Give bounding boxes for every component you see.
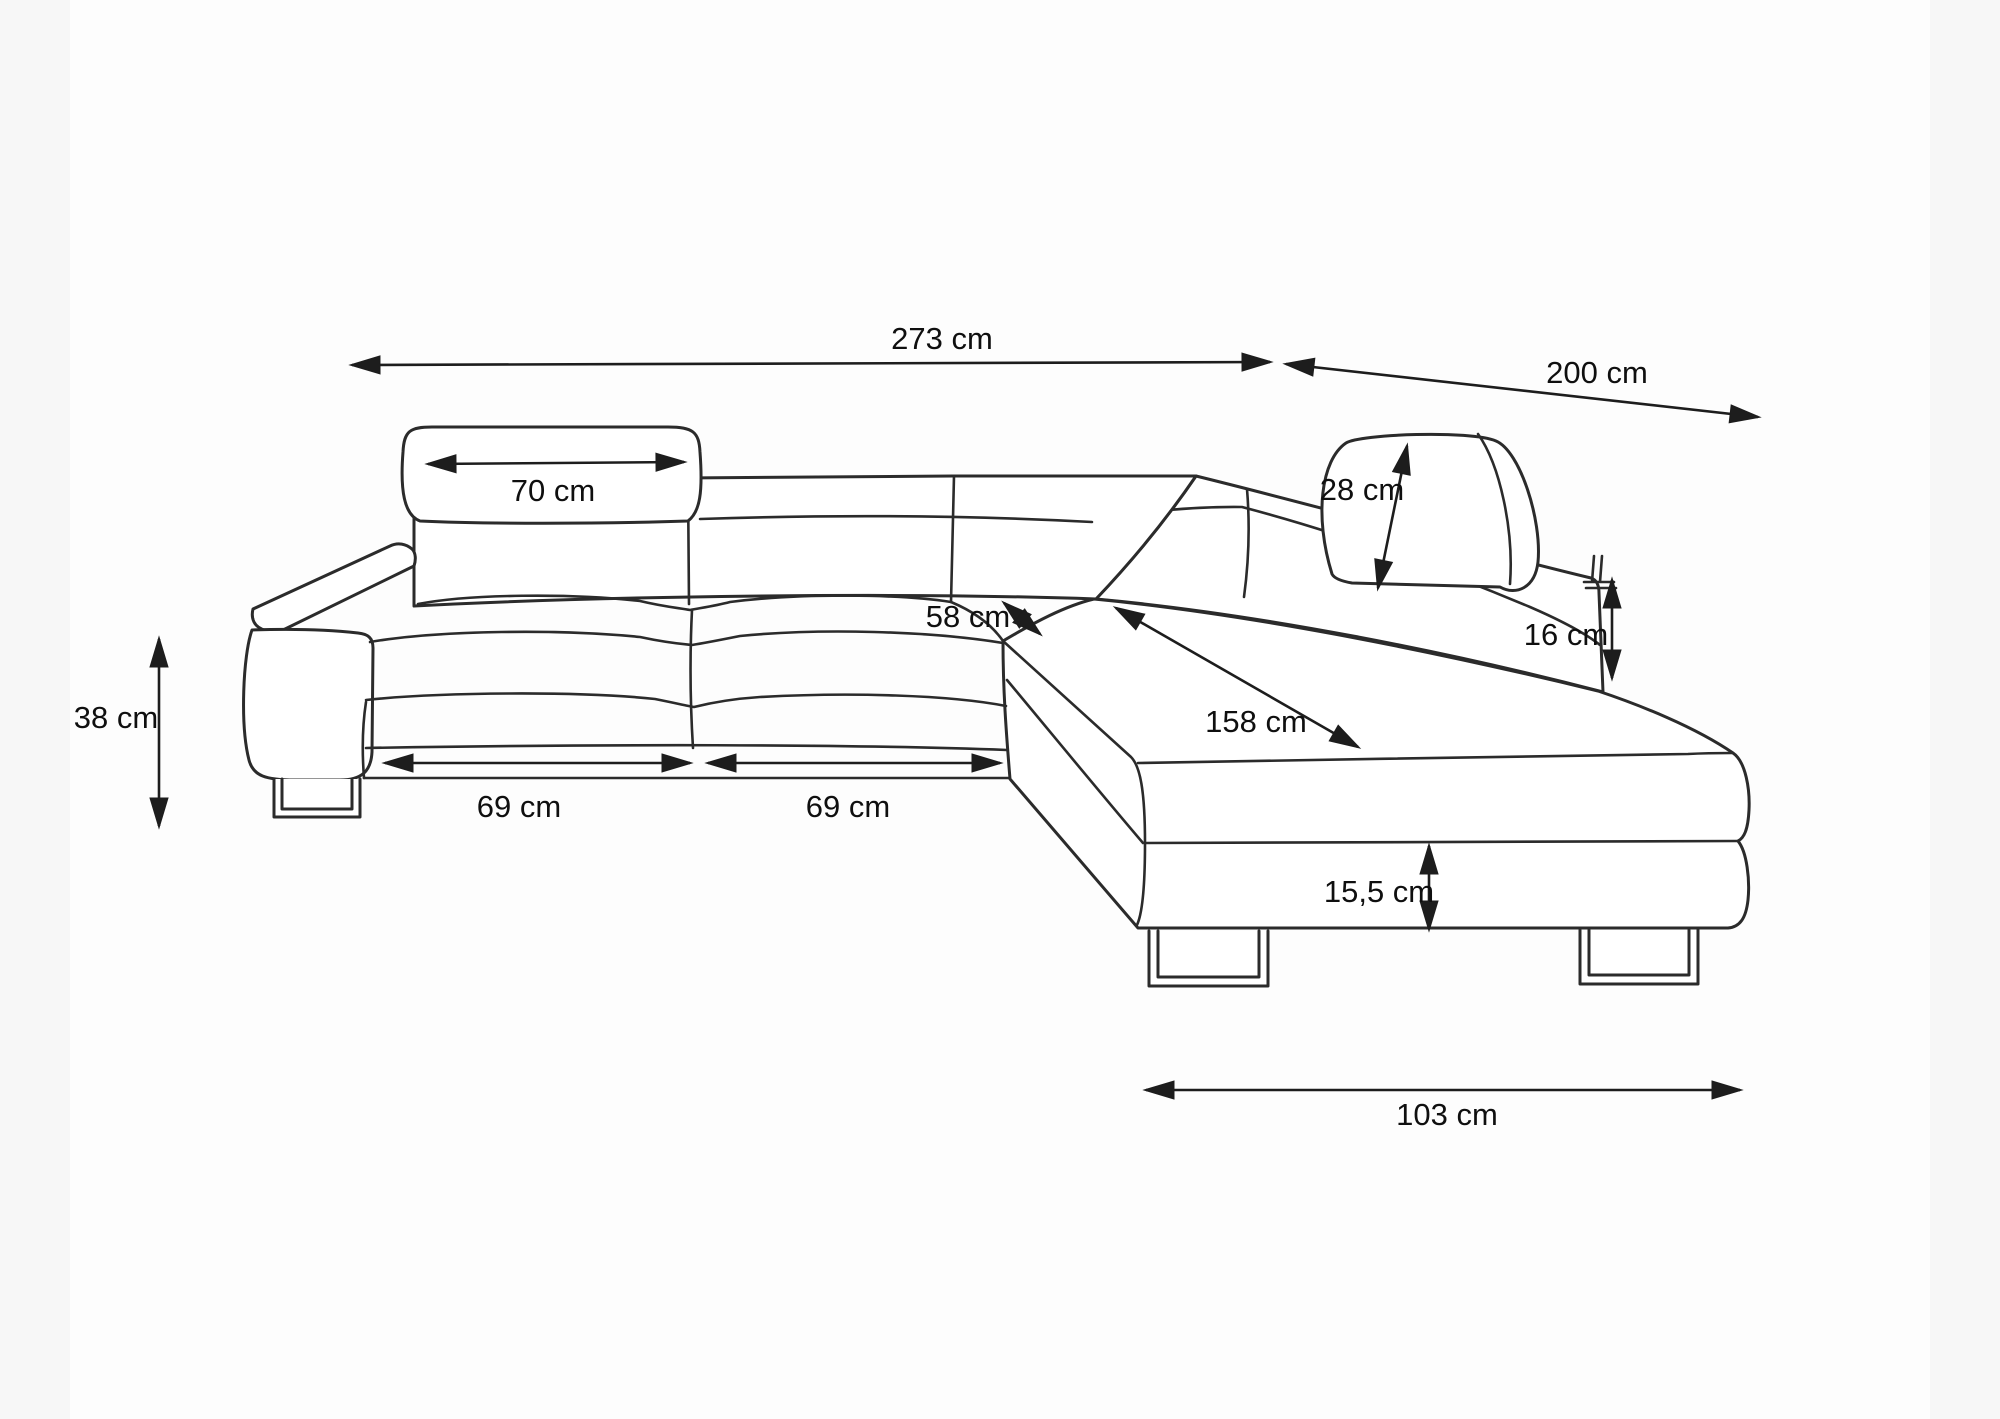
total-depth-label: 200 cm <box>1546 355 1648 390</box>
seat-base-top-line <box>366 745 1007 750</box>
sofa-dimension-diagram: 273 cm 200 cm 70 cm 28 cm 16 cm 38 cm 58… <box>0 0 2000 1419</box>
headrest-height-label: 28 cm <box>1320 472 1404 507</box>
seat-tuft-line-front <box>370 632 1003 645</box>
armrest-top <box>252 544 415 632</box>
armrest-height-label: 38 cm <box>74 700 158 735</box>
corner-seat-depth-label: 58 cm <box>926 599 1010 634</box>
sleeping-length-label: 158 cm <box>1205 704 1307 739</box>
total-depth-arrow <box>1286 364 1758 417</box>
seat-width-left-label: 69 cm <box>477 789 561 824</box>
total-width-label: 273 cm <box>891 321 993 356</box>
seat-cushion-seam <box>691 610 693 748</box>
right-gutter <box>1930 0 2000 1419</box>
armrest-front <box>244 629 373 780</box>
headrest-width-label: 70 cm <box>511 473 595 508</box>
sofa-diagram-canvas: 273 cm 200 cm 70 cm 28 cm 16 cm 38 cm 58… <box>0 0 2000 1419</box>
sofa-drawing <box>244 427 1750 986</box>
chaise-leg-left <box>1149 931 1268 986</box>
armrest-leg <box>274 779 360 817</box>
base-height-label: 15,5 cm <box>1324 874 1434 909</box>
chaise-width-label: 103 cm <box>1396 1097 1498 1132</box>
left-gutter <box>0 0 70 1419</box>
seat-width-right-label: 69 cm <box>806 789 890 824</box>
seat-front-roll <box>366 693 1006 707</box>
backrest-above-seat-label: 16 cm <box>1524 617 1608 652</box>
chaise-leg-right <box>1580 930 1698 984</box>
total-width-arrow <box>352 362 1270 365</box>
